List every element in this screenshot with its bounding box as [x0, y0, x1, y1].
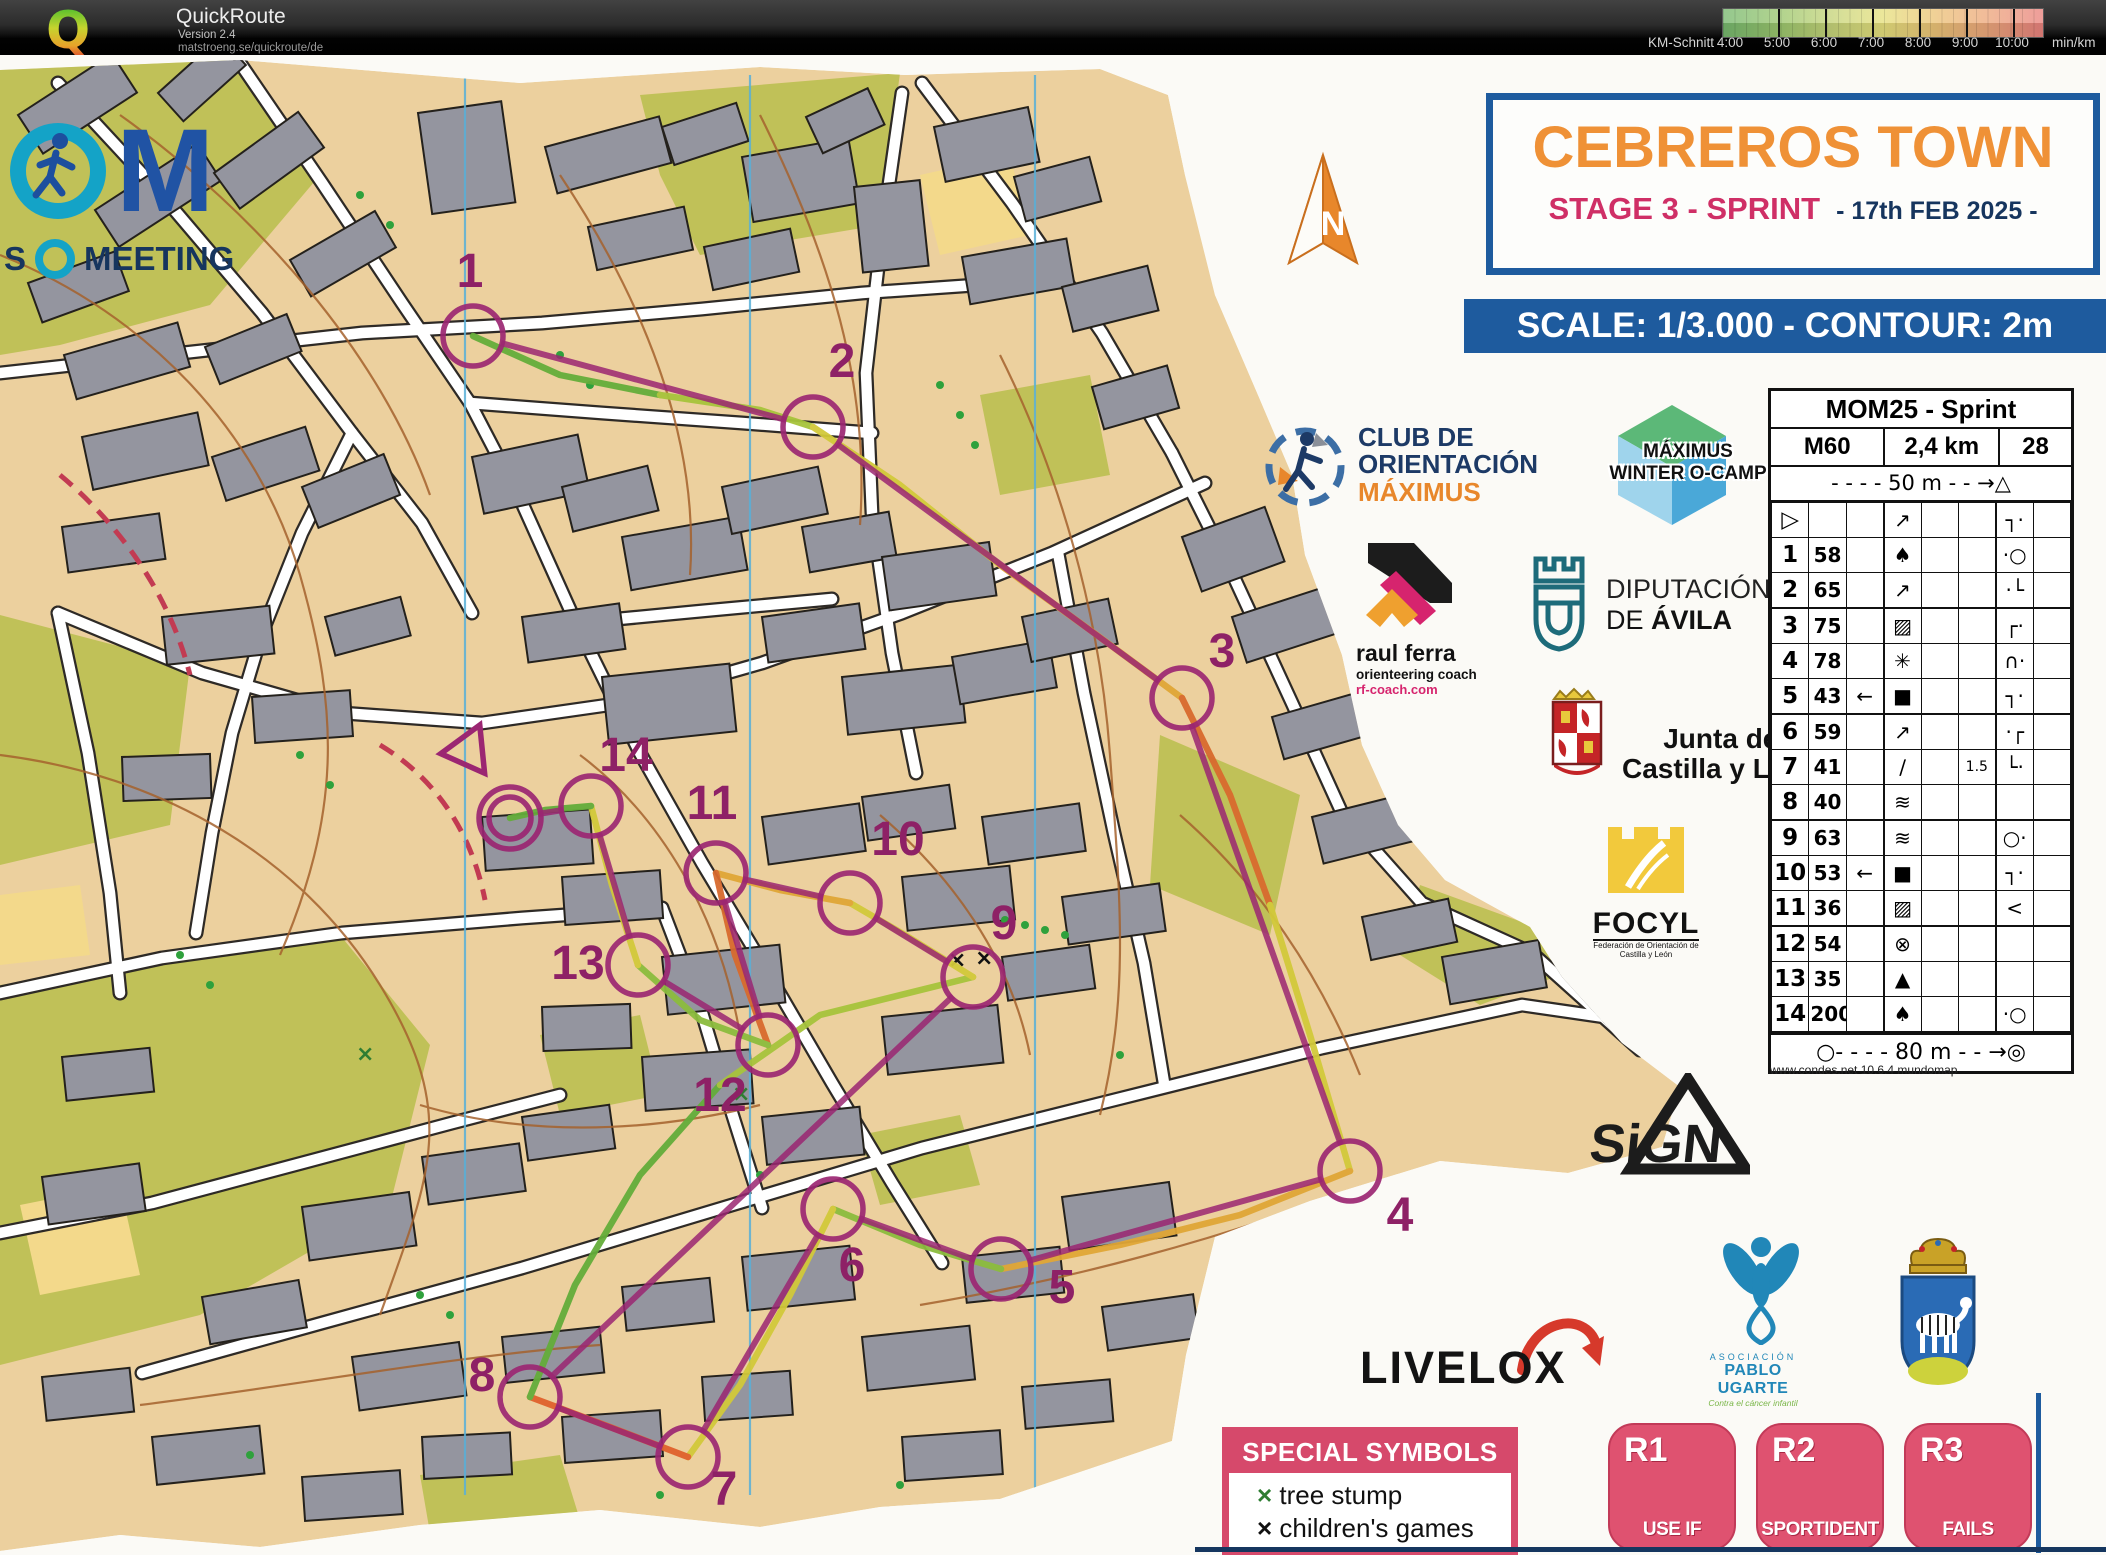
sign-logo: SiGN: [1590, 1073, 1750, 1188]
raul-url[interactable]: rf-coach.com: [1356, 682, 1506, 697]
control-cell-e: [1921, 997, 1958, 1033]
control-cell-d: ↗: [1884, 503, 1921, 538]
control-row: 265↗·└: [1772, 573, 2071, 609]
legend-tick-label: 5:00: [1764, 35, 1790, 50]
pace-legend-unit: min/km: [2052, 35, 2096, 50]
control-cell-n: 6: [1772, 714, 1809, 750]
relay-code: R2: [1772, 1431, 1815, 1470]
junta-shield-icon: [1540, 687, 1614, 783]
focyl-name: FOCYL: [1593, 910, 1700, 941]
control-row: 741∕1.5└·: [1772, 750, 2071, 785]
relay-box-r2: R2 SPORTIDENT: [1756, 1423, 1884, 1551]
control-cell-f: [1958, 856, 1995, 891]
control-cell-d: ▨: [1884, 608, 1921, 644]
ocamp-line1: MÁXIMUS: [1588, 441, 1788, 463]
relay-label: USE IF: [1610, 1519, 1734, 1541]
control-cell-g: ┐·: [1996, 856, 2033, 891]
focyl-castle-icon: [1598, 817, 1694, 905]
control-cell-g: [1996, 926, 2033, 962]
focyl-logo: FOCYL Federación de Orientación de Casti…: [1586, 817, 1706, 960]
control-cell-c: [1846, 926, 1883, 962]
control-cell-h: [2033, 856, 2070, 891]
relay-label: FAILS: [1906, 1519, 2030, 1541]
diputacion-line2b: ÁVILA: [1651, 605, 1732, 635]
control-cell-f: [1958, 679, 1995, 715]
relay-box-r1: R1 USE IF: [1608, 1423, 1736, 1551]
control-cell-d: ■: [1884, 679, 1921, 715]
control-cell-d: ♠: [1884, 538, 1921, 573]
legend-tick-label: 4:00: [1717, 35, 1743, 50]
control-cell-e: [1921, 785, 1958, 821]
special-symbols-list: × tree stump× children's games: [1229, 1473, 1511, 1552]
club-maximus-logo: CLUB DE ORIENTACIÓN MÁXIMUS: [1262, 417, 1538, 513]
sheet-class: M60: [1771, 429, 1885, 465]
control-cell-h: [2033, 926, 2070, 962]
map-sheet-border: [2036, 1393, 2041, 1553]
control-cell-h: [2033, 714, 2070, 750]
control-row: 14200♠·○: [1772, 997, 2071, 1033]
control-cell-g: ┐·: [1996, 503, 2033, 538]
app-version: Version 2.4: [178, 29, 236, 41]
control-row: ▷↗┐·: [1772, 503, 2071, 538]
control-cell-code: 35: [1809, 962, 1846, 997]
control-number-14: 14: [599, 729, 653, 782]
control-cell-h: [2033, 785, 2070, 821]
app-title: QuickRoute: [176, 5, 286, 29]
map-stage: STAGE 3 - SPRINT: [1548, 191, 1820, 227]
north-arrow-icon: N: [1283, 151, 1363, 271]
control-cell-c: [1846, 820, 1883, 856]
pablo-ugarte-icon: [1715, 1233, 1807, 1345]
control-cell-f: [1958, 644, 1995, 679]
control-number-7: 7: [711, 1463, 738, 1516]
legend-tick-row: 4:005:006:007:008:009:0010:00: [1600, 4, 2100, 54]
livelox-logo: LIVELOX: [1360, 1310, 1640, 1410]
pace-legend: KM-Schnitt 4:005:006:007:008:009:0010:00…: [1600, 4, 2100, 54]
control-cell-h: [2033, 573, 2070, 609]
control-number-3: 3: [1209, 625, 1236, 678]
relay-box-r3: R3 FAILS: [1904, 1423, 2032, 1551]
control-cell-c: [1846, 573, 1883, 609]
control-cell-d: ≋: [1884, 785, 1921, 821]
control-row: 375▨┌·: [1772, 608, 2071, 644]
legend-tick-label: 6:00: [1811, 35, 1837, 50]
control-number-8: 8: [469, 1349, 496, 1402]
special-symbols-box: SPECIAL SYMBOLS × tree stump× children's…: [1222, 1427, 1518, 1555]
app-url-link[interactable]: matstroeng.se/quickroute/de: [178, 42, 323, 54]
control-cell-h: [2033, 820, 2070, 856]
control-cell-n: ▷: [1772, 503, 1809, 538]
event-logo-letter: M: [116, 103, 210, 239]
control-cell-c: [1846, 997, 1883, 1033]
control-cell-e: [1921, 573, 1958, 609]
club-line1: CLUB DE: [1358, 424, 1538, 451]
control-cell-g: ·┌: [1996, 714, 2033, 750]
control-cell-n: 1: [1772, 538, 1809, 573]
control-number-11: 11: [687, 777, 738, 830]
raul-ferra-icon: [1356, 537, 1466, 633]
special-symbol-item: × tree stump: [1257, 1479, 1501, 1512]
control-cell-d: ✳: [1884, 644, 1921, 679]
scale-banner: SCALE: 1/3.000 - CONTOUR: 2m: [1464, 299, 2106, 353]
control-row: 1335▲: [1772, 962, 2071, 997]
map-date: - 17th FEB 2025 -: [1836, 197, 2037, 226]
control-cell-g: ·└: [1996, 573, 2033, 609]
north-arrow-label: N: [1321, 205, 1346, 243]
club-line3: MÁXIMUS: [1358, 479, 1538, 506]
focyl-sub1: Federación de Orientación de: [1586, 941, 1706, 951]
control-sheet-rows: ▷↗┐·158♠·○265↗·└375▨┌·478✳∩·543←■┐·659↗·…: [1772, 503, 2071, 1033]
control-cell-g: ∩·: [1996, 644, 2033, 679]
control-number-4: 4: [1387, 1189, 1414, 1242]
diputacion-avila-logo: DIPUTACIÓN DE ÁVILA: [1526, 553, 1771, 657]
winter-ocamp-logo: MÁXIMUS WINTER O-CAMP: [1570, 403, 1780, 528]
control-row: 659↗·┌: [1772, 714, 2071, 750]
control-row: 1136▨<: [1772, 891, 2071, 927]
control-cell-f: [1958, 503, 1995, 538]
pablo-line2: PABLO UGARTE: [1688, 1362, 1818, 1398]
control-cell-n: 5: [1772, 679, 1809, 715]
control-row: 1053←■┐·: [1772, 856, 2071, 891]
control-cell-g: [1996, 962, 2033, 997]
control-cell-g: ○·: [1996, 820, 2033, 856]
control-cell-f: [1958, 891, 1995, 927]
livelox-name: LIVELOX: [1360, 1342, 1567, 1394]
diputacion-shield-icon: [1526, 553, 1592, 657]
legend-tick-label: 8:00: [1905, 35, 1931, 50]
control-cell-code: 200: [1809, 997, 1846, 1033]
control-cell-c: [1846, 644, 1883, 679]
control-number-10: 10: [871, 813, 924, 866]
control-cell-c: [1846, 608, 1883, 644]
mom-event-logo: M S MEETING: [4, 103, 234, 279]
control-cell-n: 14: [1772, 997, 1809, 1033]
control-cell-code: 40: [1809, 785, 1846, 821]
control-cell-h: [2033, 538, 2070, 573]
control-cell-f: [1958, 926, 1995, 962]
raul-role: orienteering coach: [1356, 667, 1506, 682]
control-cell-d: ↗: [1884, 573, 1921, 609]
control-number-1: 1: [457, 245, 484, 298]
pablo-ugarte-logo: ASOCIACIÓN PABLO UGARTE Contra el cáncer…: [1688, 1233, 1818, 1408]
relay-code: R3: [1920, 1431, 1963, 1470]
control-number-13: 13: [551, 937, 604, 990]
titlebar: Q QuickRoute Version 2.4 matstroeng.se/q…: [0, 0, 2106, 55]
control-cell-h: [2033, 891, 2070, 927]
sheet-climb: 28: [2000, 429, 2071, 465]
sheet-start-distance: - - - - 50 m - - →△: [1771, 467, 2071, 502]
quickroute-logo-icon: Q: [38, 0, 148, 55]
control-cell-e: [1921, 820, 1958, 856]
control-cell-g: └·: [1996, 750, 2033, 785]
control-cell-e: [1921, 926, 1958, 962]
control-cell-f: [1958, 997, 1995, 1033]
control-cell-c: [1846, 503, 1883, 538]
svg-text:Q: Q: [46, 1, 90, 55]
club-line2: ORIENTACIÓN: [1358, 451, 1538, 478]
control-cell-code: 41: [1809, 750, 1846, 785]
control-cell-code: 36: [1809, 891, 1846, 927]
control-cell-e: [1921, 714, 1958, 750]
control-number-12: 12: [693, 1069, 746, 1122]
diputacion-line2: DE: [1606, 605, 1651, 635]
control-cell-d: ▲: [1884, 962, 1921, 997]
control-cell-code: 58: [1809, 538, 1846, 573]
control-cell-n: 7: [1772, 750, 1809, 785]
club-runner-icon: [1262, 417, 1348, 513]
svg-text:×: ×: [356, 1042, 374, 1067]
control-row: 543←■┐·: [1772, 679, 2071, 715]
control-cell-code: 75: [1809, 608, 1846, 644]
control-cell-code: 54: [1809, 926, 1846, 962]
control-cell-d: ■: [1884, 856, 1921, 891]
control-cell-h: [2033, 997, 2070, 1033]
control-cell-h: [2033, 962, 2070, 997]
control-cell-e: [1921, 608, 1958, 644]
control-row: 478✳∩·: [1772, 644, 2071, 679]
raul-name: raul ferra: [1356, 640, 1506, 667]
control-cell-code: [1809, 503, 1846, 538]
control-cell-c: [1846, 538, 1883, 573]
control-cell-f: [1958, 820, 1995, 856]
control-cell-e: [1921, 962, 1958, 997]
special-symbol-item: × children's games: [1257, 1512, 1501, 1545]
pablo-line1: ASOCIACIÓN: [1688, 1352, 1818, 1362]
control-cell-n: 12: [1772, 926, 1809, 962]
focyl-sub2: Castilla y León: [1586, 950, 1706, 960]
raul-ferra-logo: raul ferra orienteering coach rf-coach.c…: [1356, 537, 1506, 697]
runner-ring-icon: [4, 115, 116, 227]
control-cell-c: [1846, 785, 1883, 821]
special-symbol-label: children's games: [1272, 1513, 1474, 1543]
control-cell-f: [1958, 714, 1995, 750]
control-cell-d: ↗: [1884, 714, 1921, 750]
control-cell-e: [1921, 538, 1958, 573]
diputacion-line1: DIPUTACIÓN: [1606, 574, 1771, 605]
control-cell-d: ⊗: [1884, 926, 1921, 962]
control-cell-d: ♠: [1884, 997, 1921, 1033]
control-cell-h: [2033, 644, 2070, 679]
control-cell-h: [2033, 679, 2070, 715]
special-symbols-title: SPECIAL SYMBOLS: [1229, 1434, 1511, 1473]
cebreros-crest: [1888, 1233, 1988, 1388]
control-cell-f: [1958, 608, 1995, 644]
special-symbol-label: tree stump: [1272, 1480, 1402, 1510]
control-cell-f: 1.5: [1958, 750, 1995, 785]
control-row: 158♠·○: [1772, 538, 2071, 573]
legend-tick-label: 7:00: [1858, 35, 1884, 50]
control-cell-g: ·○: [1996, 997, 2033, 1033]
control-cell-e: [1921, 644, 1958, 679]
pablo-line3: Contra el cáncer infantil: [1688, 1398, 1818, 1408]
control-row: 963≋○·: [1772, 820, 2071, 856]
control-cell-h: [2033, 608, 2070, 644]
control-cell-e: [1921, 750, 1958, 785]
special-symbol-mark-icon: ×: [1257, 1480, 1272, 1510]
control-number-6: 6: [839, 1239, 866, 1292]
control-cell-g: ·○: [1996, 538, 2033, 573]
control-cell-code: 78: [1809, 644, 1846, 679]
control-cell-e: [1921, 679, 1958, 715]
sheet-title: MOM25 - Sprint: [1771, 391, 2071, 429]
control-cell-n: 4: [1772, 644, 1809, 679]
control-cell-n: 9: [1772, 820, 1809, 856]
special-symbol-mark-icon: ×: [1257, 1513, 1272, 1543]
control-cell-n: 13: [1772, 962, 1809, 997]
control-cell-c: ←: [1846, 856, 1883, 891]
control-cell-g: [1996, 785, 2033, 821]
control-cell-d: ∕: [1884, 750, 1921, 785]
control-cell-h: [2033, 503, 2070, 538]
map-sheet-border: [1195, 1547, 2106, 1552]
control-description-sheet: MOM25 - Sprint M60 2,4 km 28 - - - - 50 …: [1768, 388, 2074, 1074]
control-cell-c: [1846, 714, 1883, 750]
sheet-distance: 2,4 km: [1885, 429, 1999, 465]
control-cell-c: [1846, 750, 1883, 785]
control-number-2: 2: [829, 335, 856, 388]
control-number-5: 5: [1049, 1261, 1076, 1314]
map-title-box: CEBREROS TOWN STAGE 3 - SPRINT - 17th FE…: [1486, 93, 2100, 275]
control-row: 1254⊗: [1772, 926, 2071, 962]
control-cell-e: [1921, 856, 1958, 891]
control-cell-f: [1958, 573, 1995, 609]
control-cell-code: 53: [1809, 856, 1846, 891]
relay-label: SPORTIDENT: [1758, 1519, 1882, 1541]
control-cell-c: [1846, 891, 1883, 927]
control-cell-f: [1958, 785, 1995, 821]
control-cell-code: 59: [1809, 714, 1846, 750]
control-cell-n: 2: [1772, 573, 1809, 609]
control-cell-c: [1846, 962, 1883, 997]
control-cell-g: <: [1996, 891, 2033, 927]
sign-name: SiGN: [1587, 1113, 1726, 1175]
control-cell-c: ←: [1846, 679, 1883, 715]
control-cell-n: 11: [1772, 891, 1809, 927]
control-cell-n: 8: [1772, 785, 1809, 821]
control-cell-d: ▨: [1884, 891, 1921, 927]
control-cell-code: 43: [1809, 679, 1846, 715]
map-canvas[interactable]: ×× ××: [0, 55, 2106, 1555]
control-cell-f: [1958, 962, 1995, 997]
control-cell-code: 65: [1809, 573, 1846, 609]
control-cell-d: ≋: [1884, 820, 1921, 856]
control-cell-e: [1921, 503, 1958, 538]
condes-credit: www.condes.net 10.6.4 mundomap: [1770, 1063, 1957, 1077]
control-cell-g: ┐·: [1996, 679, 2033, 715]
o-ring-icon: [35, 239, 75, 279]
relay-code: R1: [1624, 1431, 1667, 1470]
event-logo-sub-right: MEETING: [84, 240, 234, 278]
legend-tick-label: 9:00: [1952, 35, 1978, 50]
control-cell-n: 3: [1772, 608, 1809, 644]
control-cell-code: 63: [1809, 820, 1846, 856]
event-logo-sub-left: S: [4, 240, 26, 278]
quickroute-window: Q QuickRoute Version 2.4 matstroeng.se/q…: [0, 0, 2106, 1555]
control-cell-n: 10: [1772, 856, 1809, 891]
control-row: 840≋: [1772, 785, 2071, 821]
control-number-9: 9: [991, 897, 1018, 950]
control-cell-e: [1921, 891, 1958, 927]
control-cell-g: ┌·: [1996, 608, 2033, 644]
ocamp-line2: WINTER O-CAMP: [1588, 463, 1788, 485]
legend-tick-label: 10:00: [1995, 35, 2029, 50]
control-cell-h: [2033, 750, 2070, 785]
control-cell-f: [1958, 538, 1995, 573]
map-title: CEBREROS TOWN: [1493, 114, 2093, 181]
